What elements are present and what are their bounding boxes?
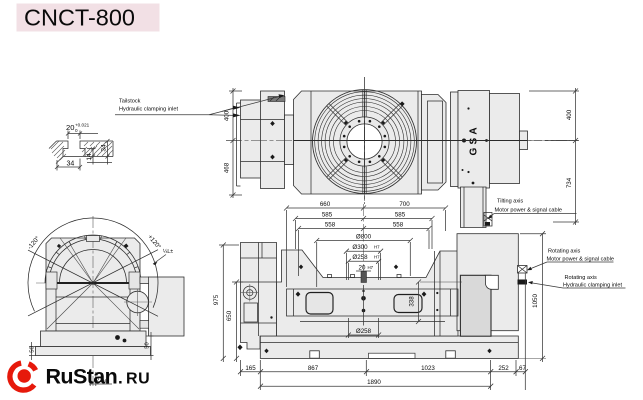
svg-text:Motor power & signal cable: Motor power & signal cable	[547, 257, 614, 263]
svg-text:Tilting axis: Tilting axis	[497, 199, 523, 205]
svg-text:34: 34	[67, 161, 75, 168]
svg-text:0: 0	[75, 128, 78, 133]
svg-text:20: 20	[66, 123, 74, 132]
svg-text:585: 585	[395, 212, 406, 219]
svg-text:650: 650	[226, 310, 233, 321]
svg-text:1023: 1023	[421, 365, 435, 372]
svg-text:GSA: GSA	[469, 124, 480, 155]
svg-text:20: 20	[359, 264, 366, 271]
svg-text:¼L±: ¼L±	[163, 249, 173, 255]
svg-text:468: 468	[224, 162, 231, 173]
svg-text:734: 734	[566, 177, 573, 188]
svg-text:Rotating axis: Rotating axis	[548, 249, 581, 255]
svg-text:67: 67	[519, 365, 526, 372]
svg-text:Ø258: Ø258	[356, 328, 372, 335]
svg-text:Ø300: Ø300	[352, 244, 368, 251]
svg-text:H7: H7	[374, 245, 380, 250]
svg-text:+0.021: +0.021	[75, 123, 90, 128]
svg-text:Hydraulic clamping inlet: Hydraulic clamping inlet	[563, 283, 623, 289]
svg-text:400: 400	[566, 109, 573, 120]
svg-text:Motor power & signal cable: Motor power & signal cable	[495, 208, 562, 214]
svg-text:Rotating axis: Rotating axis	[565, 275, 598, 281]
svg-text:Ø800: Ø800	[356, 234, 372, 241]
svg-text:585: 585	[322, 212, 333, 219]
svg-text:Tailstock: Tailstock	[119, 99, 141, 105]
svg-text:50: 50	[30, 346, 36, 352]
svg-text:H7: H7	[374, 255, 380, 260]
svg-text:RU: RU	[126, 371, 150, 388]
svg-text:400: 400	[224, 110, 231, 121]
svg-text:Ø258: Ø258	[352, 254, 368, 261]
svg-text:558: 558	[325, 222, 336, 229]
svg-text:867: 867	[308, 365, 319, 372]
svg-text:660: 660	[320, 201, 331, 208]
svg-text:50: 50	[145, 342, 151, 348]
svg-text:975: 975	[213, 294, 220, 305]
svg-text:RuStan: RuStan	[46, 365, 118, 389]
svg-text:Hydraulic clamping inlet: Hydraulic clamping inlet	[119, 107, 179, 113]
svg-text:.: .	[118, 369, 123, 388]
svg-text:14: 14	[86, 153, 93, 161]
svg-text:CNCT-800: CNCT-800	[24, 5, 135, 31]
svg-text:1050: 1050	[532, 294, 539, 308]
svg-text:338: 338	[409, 296, 416, 307]
svg-text:1890: 1890	[367, 379, 381, 386]
svg-text:252: 252	[498, 365, 509, 372]
svg-text:34: 34	[100, 144, 107, 152]
svg-text:558: 558	[393, 222, 404, 229]
svg-text:700: 700	[399, 201, 410, 208]
svg-text:H7: H7	[368, 265, 374, 270]
svg-text:165: 165	[245, 365, 256, 372]
